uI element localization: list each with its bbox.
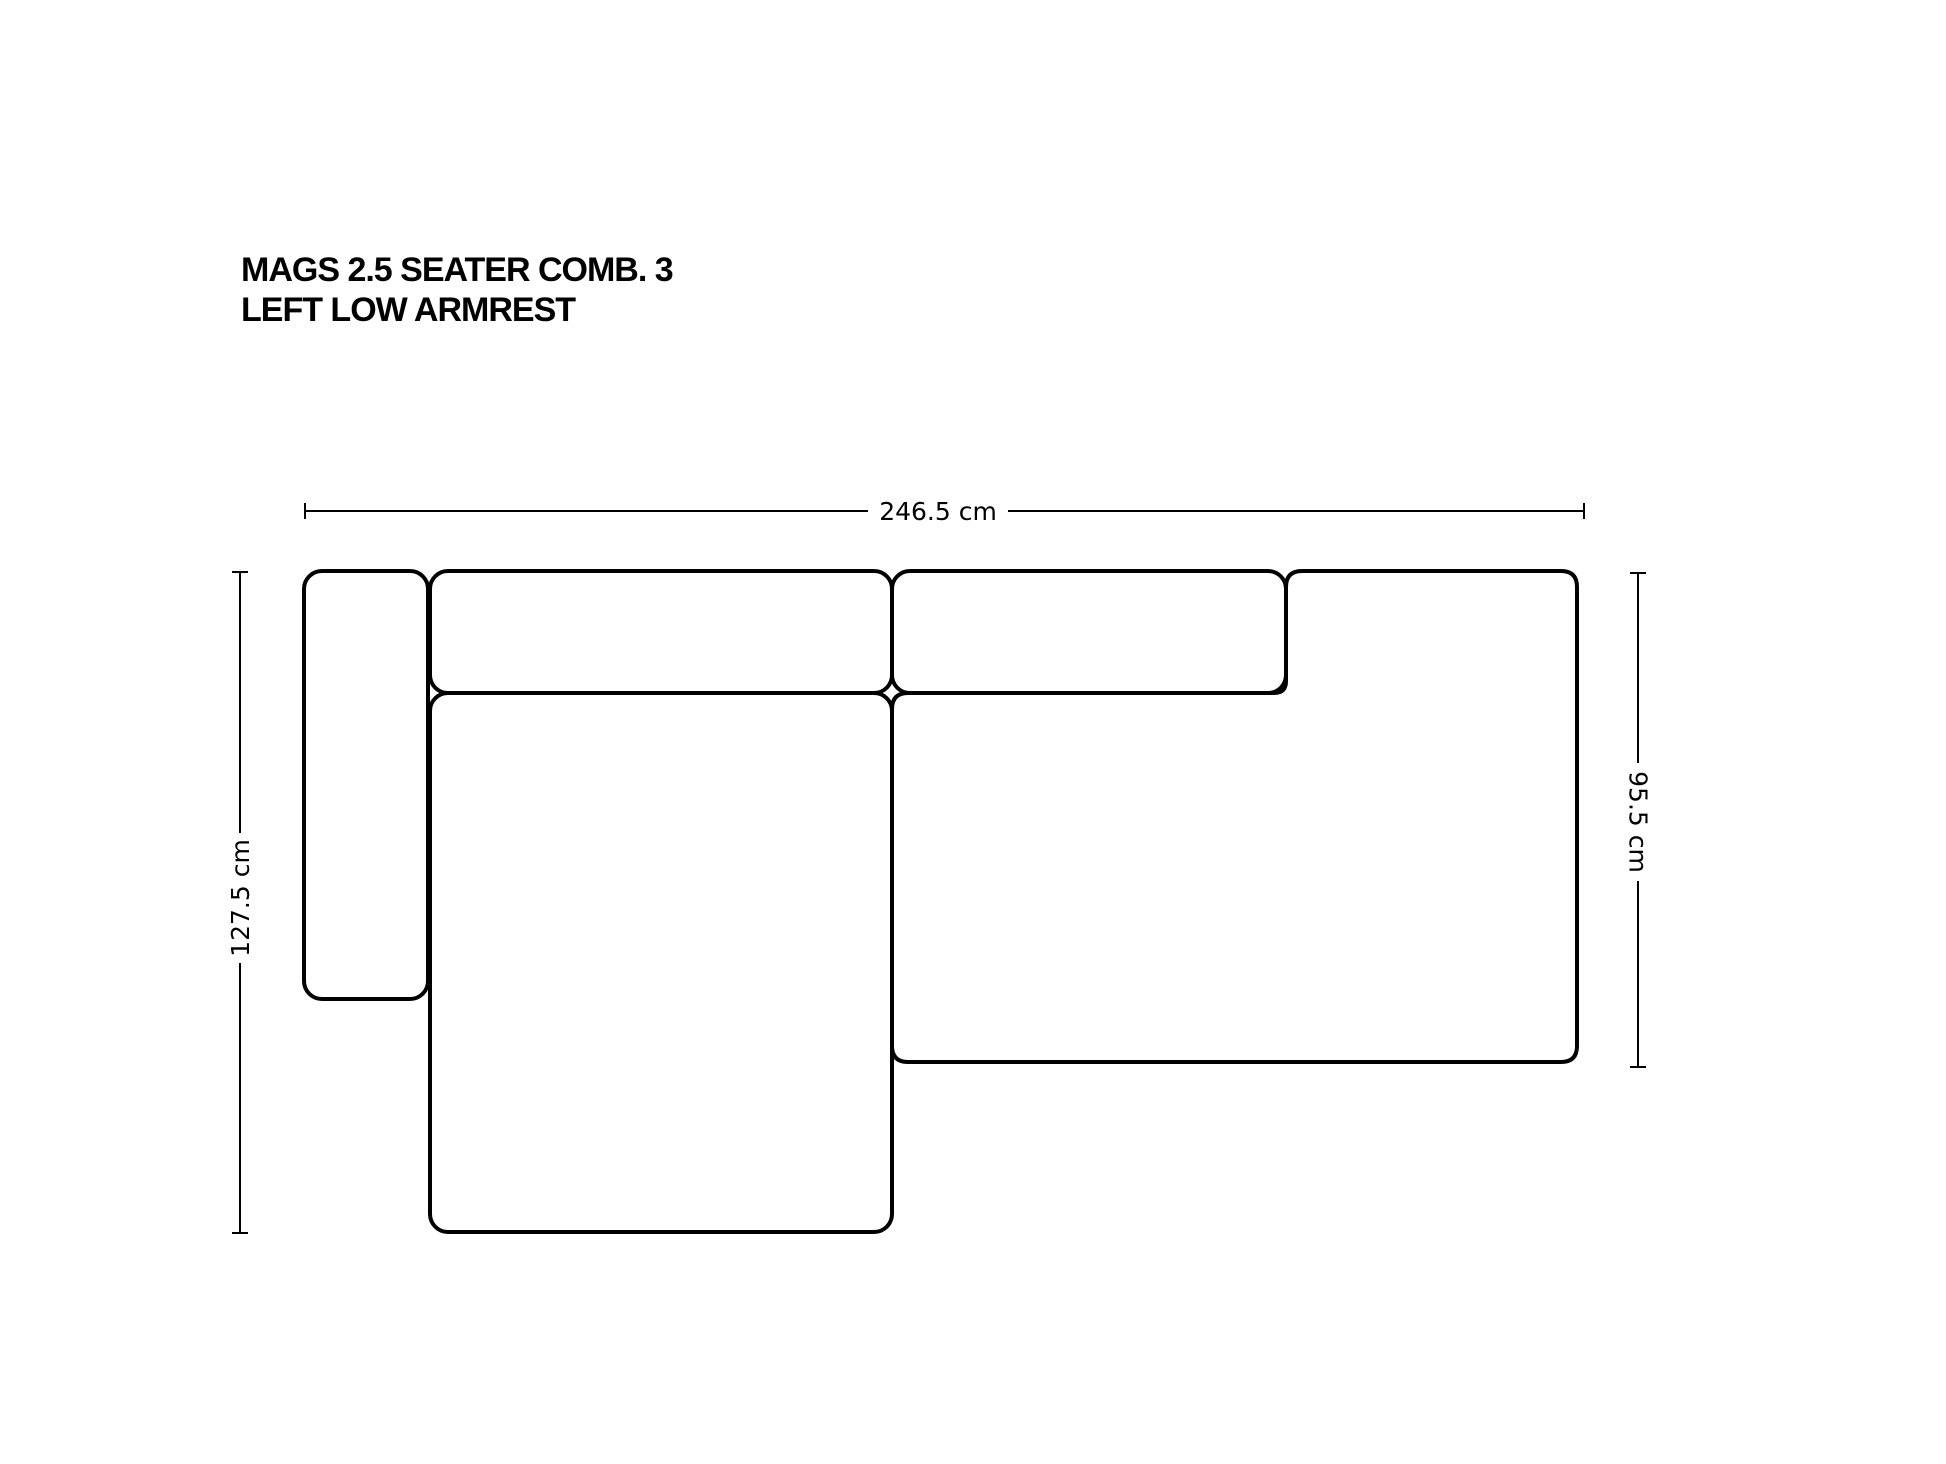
right-depth-label: 95.5 cm	[1623, 771, 1652, 873]
sofa-outline	[304, 571, 1577, 1232]
left-low-armrest-outline	[304, 571, 428, 999]
left-depth-label: 127.5 cm	[226, 839, 255, 957]
right-backrest-outline	[892, 571, 1286, 693]
width-dimension: 246.5 cm	[305, 497, 1584, 526]
page: MAGS 2.5 SEATER COMB. 3 LEFT LOW ARMREST…	[0, 0, 1946, 1464]
sofa-dimension-diagram: 246.5 cm 127.5 cm 95.5 cm	[0, 0, 1946, 1464]
right-depth-dimension: 95.5 cm	[1623, 573, 1652, 1067]
left-backrest-outline	[430, 571, 892, 693]
chaise-module-outline	[430, 693, 892, 1232]
width-dimension-label: 246.5 cm	[879, 497, 997, 526]
left-depth-dimension: 127.5 cm	[226, 572, 255, 1233]
